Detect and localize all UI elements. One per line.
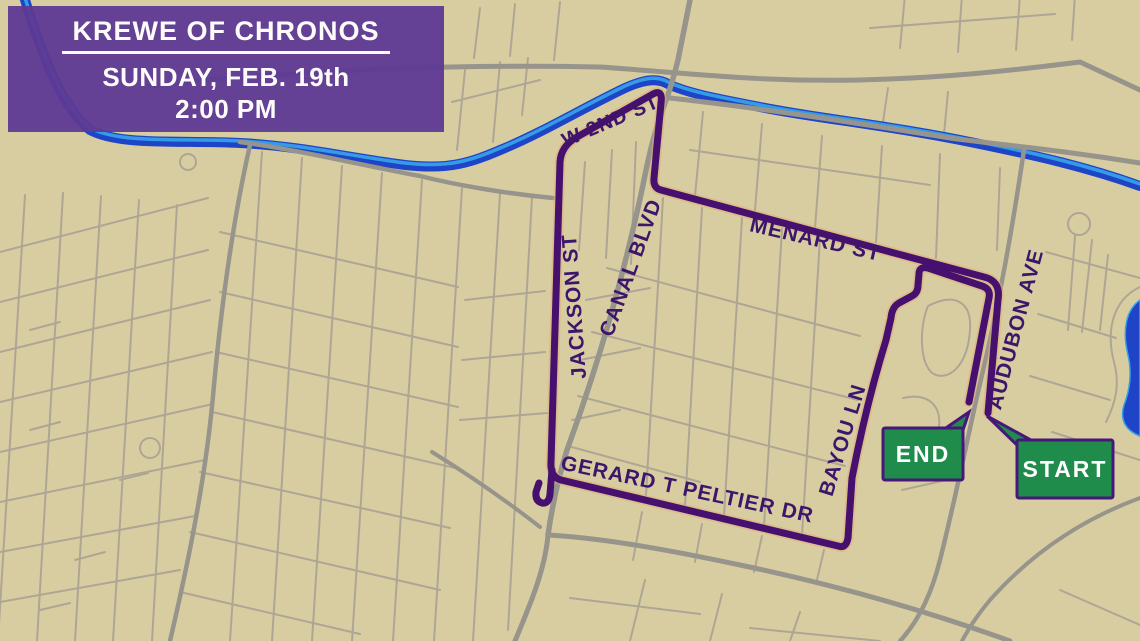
parade-time: 2:00 PM xyxy=(8,94,444,125)
start-marker-label: START xyxy=(1023,456,1108,482)
parade-date: SUNDAY, FEB. 19th xyxy=(8,62,444,93)
parade-title: KREWE OF CHRONOS xyxy=(62,16,389,54)
end-marker-label: END xyxy=(896,441,951,467)
title-card: KREWE OF CHRONOS SUNDAY, FEB. 19th 2:00 … xyxy=(8,6,444,132)
